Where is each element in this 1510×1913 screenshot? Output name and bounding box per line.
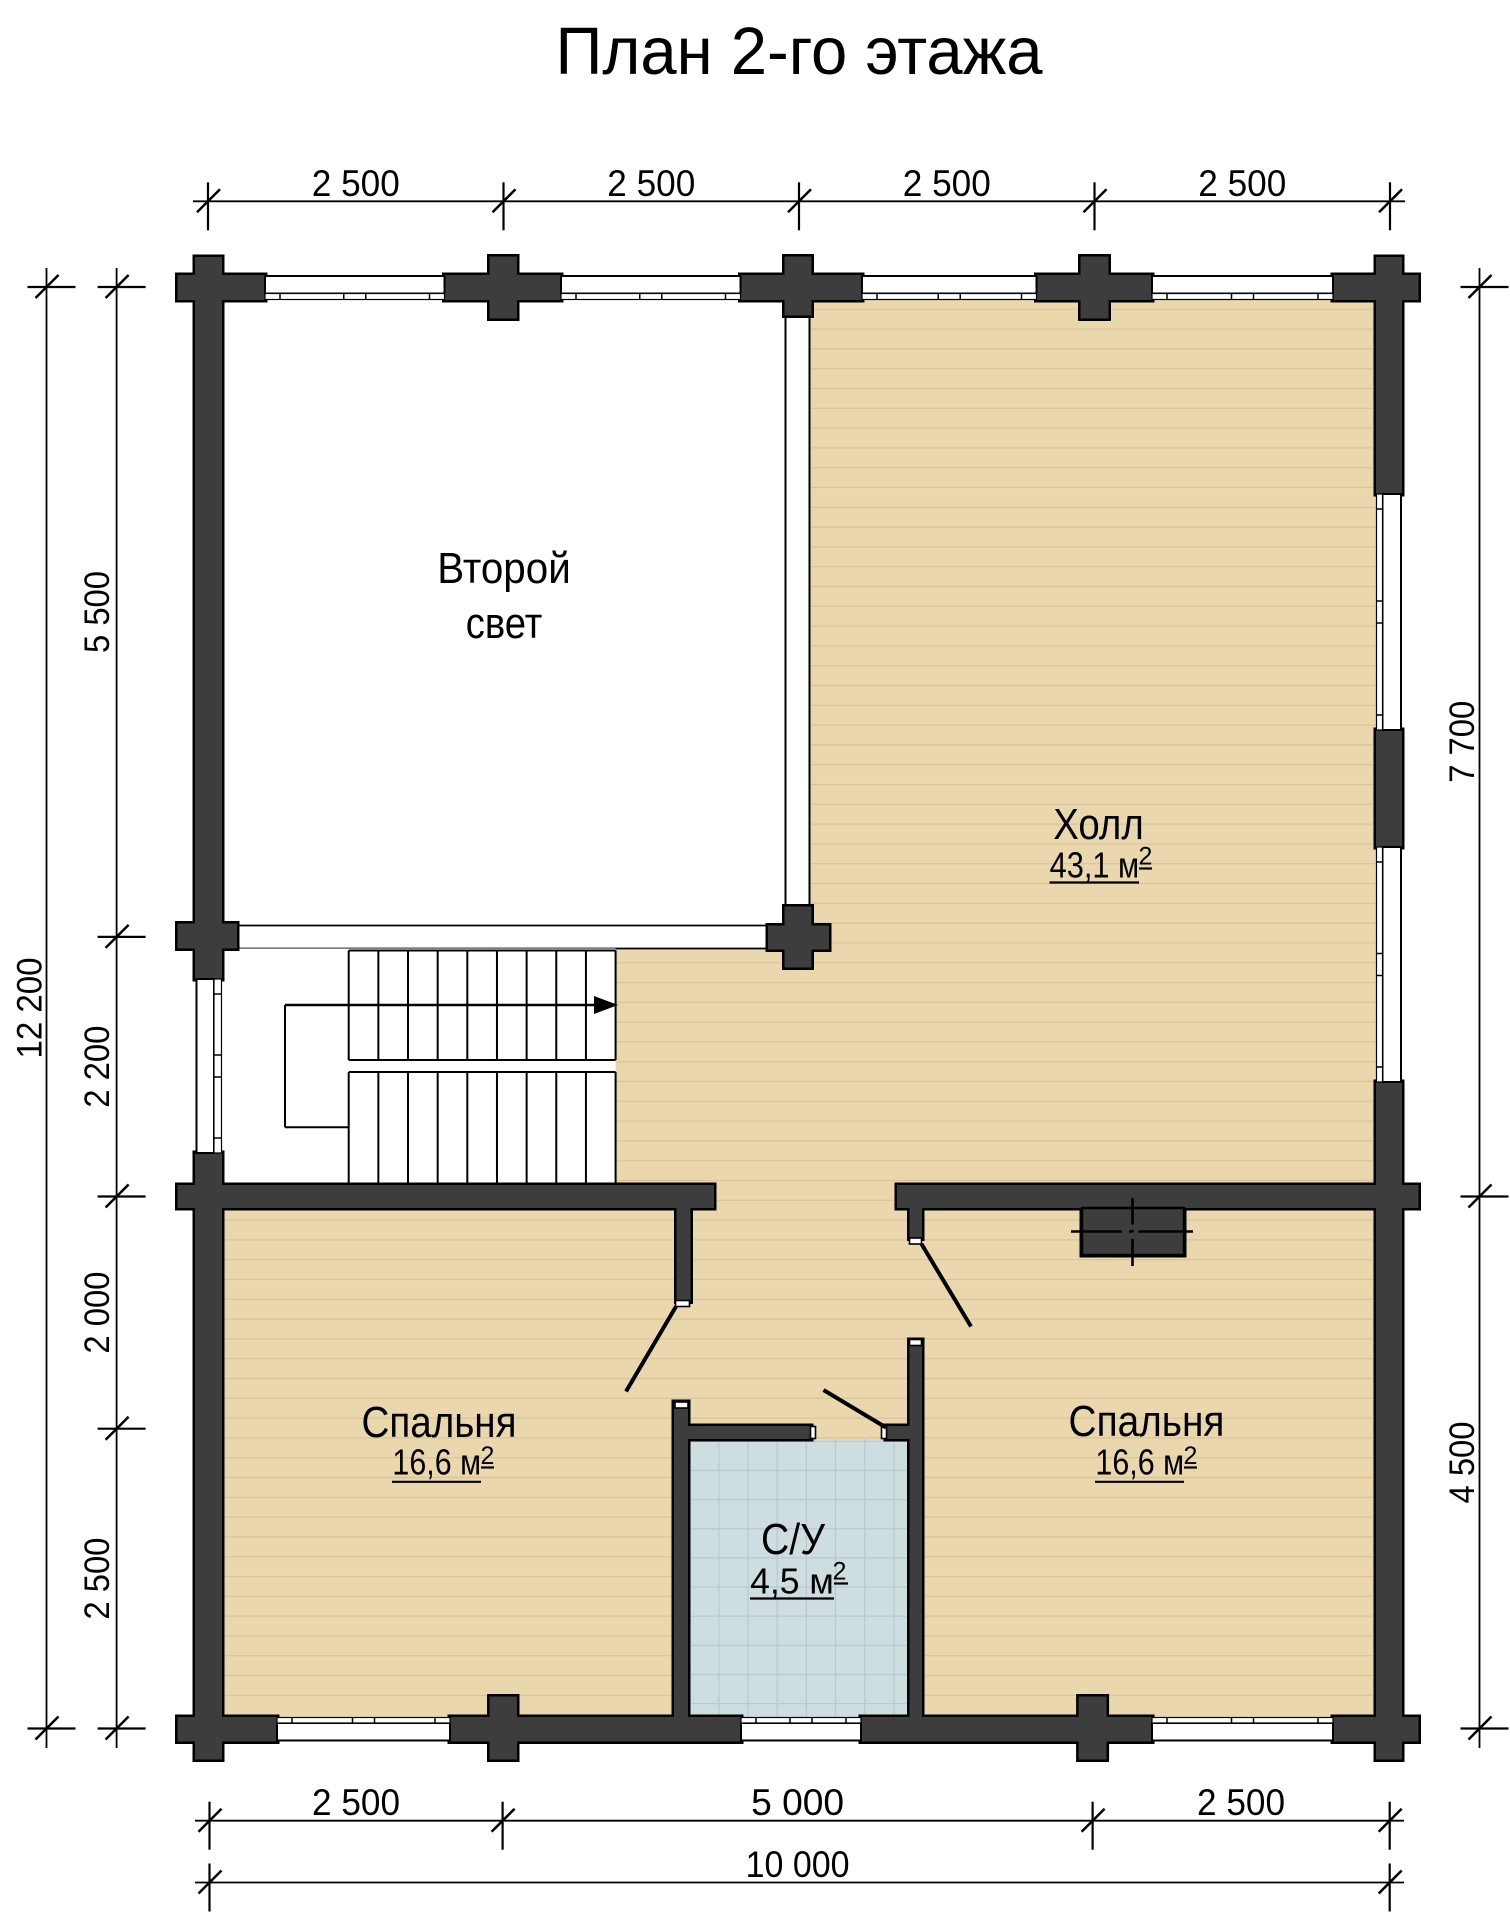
svg-text:2: 2 bbox=[833, 1558, 847, 1586]
svg-text:2: 2 bbox=[481, 1442, 495, 1470]
svg-text:2 500: 2 500 bbox=[312, 1782, 400, 1823]
svg-text:2 500: 2 500 bbox=[903, 163, 991, 204]
svg-text:10 000: 10 000 bbox=[746, 1844, 850, 1885]
svg-text:Холл: Холл bbox=[1053, 800, 1144, 849]
svg-text:План 2-го этажа: План 2-го этажа bbox=[556, 14, 1044, 89]
svg-text:Спальня: Спальня bbox=[1069, 1397, 1225, 1446]
svg-text:5 000: 5 000 bbox=[751, 1782, 844, 1823]
svg-text:4,5 м: 4,5 м bbox=[750, 1561, 834, 1602]
svg-text:2 000: 2 000 bbox=[78, 1272, 117, 1354]
svg-text:16,6 м: 16,6 м bbox=[1095, 1442, 1184, 1483]
svg-text:Спальня: Спальня bbox=[362, 1398, 517, 1447]
svg-text:2 500: 2 500 bbox=[312, 163, 400, 204]
svg-text:16,6 м: 16,6 м bbox=[392, 1442, 481, 1483]
svg-text:2 500: 2 500 bbox=[1198, 163, 1286, 204]
svg-text:2 500: 2 500 bbox=[607, 163, 695, 204]
svg-text:43,1 м: 43,1 м bbox=[1050, 845, 1140, 886]
svg-text:7 700: 7 700 bbox=[1443, 701, 1482, 783]
svg-text:С/У: С/У bbox=[761, 1515, 826, 1564]
svg-text:4 500: 4 500 bbox=[1443, 1422, 1482, 1504]
svg-text:Второй: Второй bbox=[437, 544, 571, 593]
svg-text:2: 2 bbox=[1184, 1442, 1198, 1470]
svg-text:12 200: 12 200 bbox=[11, 958, 50, 1059]
svg-text:2 500: 2 500 bbox=[1197, 1782, 1285, 1823]
svg-text:2 500: 2 500 bbox=[78, 1538, 117, 1620]
svg-text:свет: свет bbox=[466, 599, 543, 648]
svg-text:2 200: 2 200 bbox=[78, 1026, 117, 1108]
svg-text:5 500: 5 500 bbox=[78, 571, 117, 653]
svg-text:2: 2 bbox=[1139, 843, 1153, 871]
